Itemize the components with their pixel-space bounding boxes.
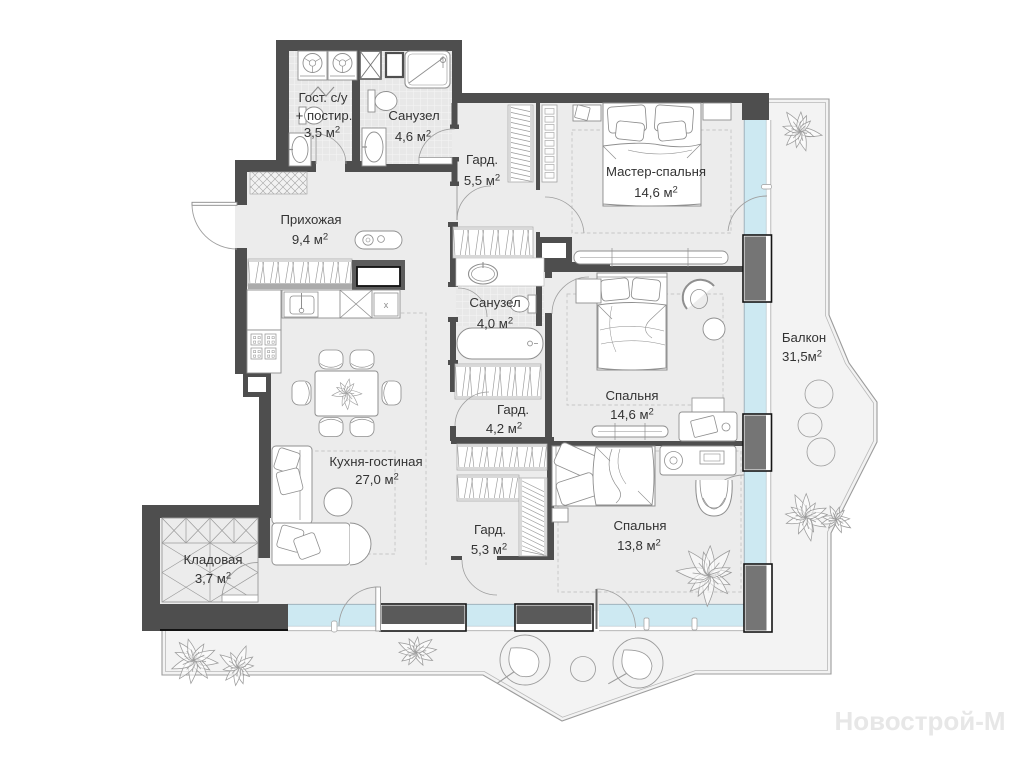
svg-text:+ постир.: + постир. [296, 108, 353, 123]
svg-text:13,8 м2: 13,8 м2 [617, 538, 661, 554]
svg-text:31,5м2: 31,5м2 [782, 349, 822, 365]
svg-text:Новострой-М: Новострой-М [834, 706, 1005, 736]
svg-text:Балкон: Балкон [782, 330, 826, 345]
svg-text:5,5 м2: 5,5 м2 [464, 173, 500, 189]
svg-text:Мастер-спальня: Мастер-спальня [606, 164, 706, 179]
svg-text:5,3 м2: 5,3 м2 [471, 542, 507, 558]
svg-text:14,6 м2: 14,6 м2 [634, 185, 678, 201]
svg-text:9,4 м2: 9,4 м2 [292, 232, 328, 248]
svg-text:x: x [384, 300, 389, 310]
svg-text:Гост. с/у: Гост. с/у [299, 90, 348, 105]
svg-text:3,7 м2: 3,7 м2 [195, 571, 231, 587]
svg-text:4,0 м2: 4,0 м2 [477, 316, 513, 332]
svg-text:Гард.: Гард. [497, 402, 529, 417]
svg-text:27,0 м2: 27,0 м2 [355, 472, 399, 488]
svg-text:Гард.: Гард. [466, 152, 498, 167]
svg-text:3,5 м2: 3,5 м2 [304, 125, 340, 141]
svg-text:Санузел: Санузел [388, 108, 439, 123]
svg-text:Спальня: Спальня [606, 388, 659, 403]
svg-text:Санузел: Санузел [469, 295, 520, 310]
svg-text:Спальня: Спальня [614, 518, 667, 533]
svg-text:Прихожая: Прихожая [280, 212, 341, 227]
svg-text:Кладовая: Кладовая [183, 552, 242, 567]
svg-text:4,6 м2: 4,6 м2 [395, 129, 431, 145]
svg-text:Кухня-гостиная: Кухня-гостиная [329, 454, 422, 469]
svg-text:4,2 м2: 4,2 м2 [486, 421, 522, 437]
svg-text:Гард.: Гард. [474, 522, 506, 537]
svg-text:14,6 м2: 14,6 м2 [610, 407, 654, 423]
